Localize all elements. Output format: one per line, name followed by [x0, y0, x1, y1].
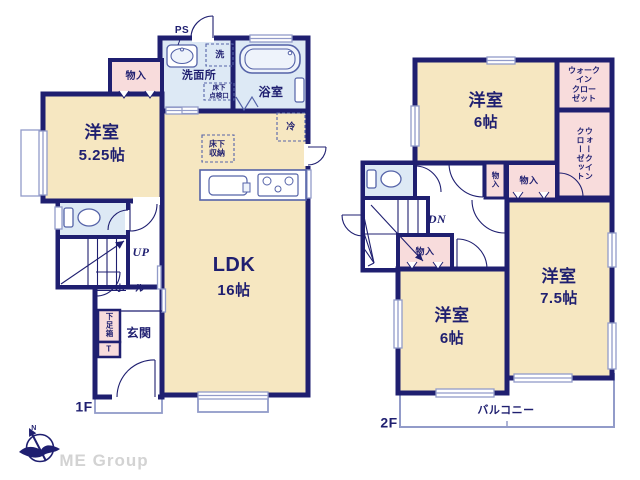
label-closet-south-2f: 物入 [415, 247, 434, 258]
toilet-1f-icon [64, 208, 100, 227]
label-ps: PS [175, 25, 189, 37]
compass-icon [19, 428, 60, 462]
label-balcony: バルコニー [477, 405, 534, 418]
floorplan-page: PS 洗面所 洗 床下 点検口 浴室 物入 洋室 5.25帖 冷 床下 収納 L… [0, 0, 640, 480]
label-closet-hall-2f: 物入 [519, 176, 538, 187]
label-ldk-name: LDK [213, 254, 256, 278]
label-bedroom-2f-north-size: 6帖 [474, 114, 498, 132]
label-wic-north: ウォーク イン クロー ゼット [568, 66, 600, 104]
label-bedroom-2f-north-name: 洋室 [469, 91, 504, 111]
label-bathroom: 浴室 [258, 85, 283, 99]
label-bedroom-2f-east-size: 7.5帖 [540, 290, 578, 308]
label-washroom: 洗面所 [182, 70, 217, 83]
label-fridge: 冷 [286, 122, 296, 133]
bay-window-1f [21, 130, 40, 196]
label-ldk-size: 16帖 [217, 282, 250, 300]
label-stairs-up: UP [133, 245, 150, 259]
door-washroom-exterior [191, 16, 213, 38]
label-floor-1f: 1F [75, 399, 92, 416]
washbasin-icon [167, 45, 197, 67]
room-bedroom-2f-east [507, 200, 612, 378]
kitchen-counter-icon [200, 170, 306, 200]
room-ldk [162, 111, 308, 395]
label-bedroom-2f-south-name: 洋室 [435, 306, 470, 326]
label-bedroom-2f-east-name: 洋室 [542, 267, 577, 287]
label-entrance: 玄関 [126, 326, 151, 340]
toilet-2f-icon [367, 170, 401, 188]
brand-logo-text: ME Group [59, 451, 148, 471]
label-compass-north: N [31, 425, 37, 433]
label-bedroom-2f-south-size: 6帖 [440, 330, 464, 348]
label-closet-1f: 物入 [126, 71, 147, 83]
floorplan-drawing [0, 0, 640, 480]
room-bedroom-2f-north [415, 60, 557, 163]
label-shoe-box-t: T [106, 344, 111, 353]
label-underfloor-storage: 床下 収納 [209, 140, 225, 159]
label-closet-hall-small-2f: 物入 [491, 172, 499, 189]
label-bedroom-1f-size: 5.25帖 [79, 147, 126, 165]
door-stairs-2f-exterior [342, 215, 363, 236]
label-underfloor-hatch: 床下 点検口 [209, 84, 229, 99]
label-stairs-dn: DN [428, 212, 446, 226]
label-hall: ホール [115, 283, 145, 294]
label-wic-east: ウォークイン クローゼット [576, 127, 593, 181]
label-washer: 洗 [215, 50, 225, 61]
label-floor-2f: 2F [380, 415, 397, 432]
label-shoe-box: 下足箱 [105, 312, 113, 338]
label-bedroom-1f-name: 洋室 [85, 123, 120, 143]
